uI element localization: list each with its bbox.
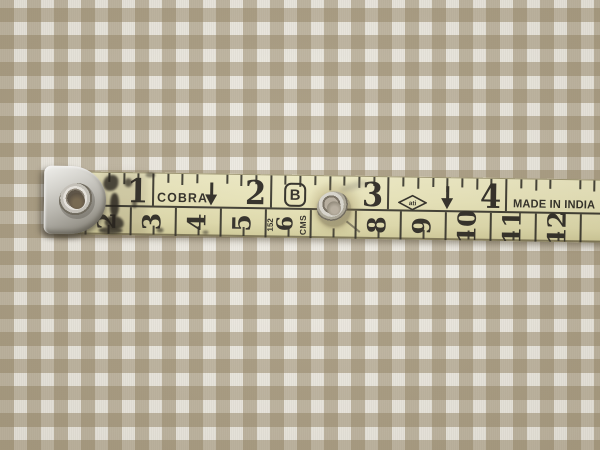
cm-tick	[467, 231, 469, 240]
cm-tick	[377, 229, 379, 238]
dirt-speck	[203, 230, 209, 234]
inch-tick	[226, 175, 228, 184]
inch-tick	[476, 179, 478, 190]
made-in-india-label: MADE IN INDIA	[513, 198, 595, 211]
inch-mark-line	[152, 174, 155, 206]
inch-tick	[373, 177, 375, 186]
half-inch-arrow-icon	[205, 182, 217, 206]
cm-mark-line	[444, 212, 446, 240]
ati-diamond-logo: ati	[398, 194, 427, 210]
dirt-smudge	[124, 178, 132, 187]
cm-mark-line	[579, 214, 581, 242]
cm-tick	[242, 227, 244, 236]
inch-tick	[432, 178, 434, 187]
cm-number-6: 6	[274, 211, 298, 235]
inch-tick	[314, 176, 316, 185]
cm-mark-line	[534, 214, 536, 242]
cm-mark-line	[174, 208, 176, 236]
grommet-hole	[69, 193, 85, 209]
grommet-icon	[59, 183, 95, 219]
cm-tick	[152, 226, 154, 235]
inch-tick	[196, 174, 198, 183]
dirt-speck	[145, 172, 155, 177]
inch-tick	[138, 173, 140, 182]
cm-tick	[512, 231, 514, 240]
inch-tick	[579, 180, 581, 189]
inch-tick	[594, 180, 596, 191]
inch-scale: 1234	[53, 171, 600, 180]
cm-mark-line	[399, 211, 401, 239]
cm-mark-line	[219, 209, 221, 237]
inch-tick	[550, 180, 552, 189]
inch-tick	[255, 175, 257, 184]
inch-mark-line	[505, 179, 508, 211]
dirt-smudge	[110, 193, 119, 217]
cm-tick	[422, 230, 424, 239]
brand-label: COBRA	[157, 190, 208, 206]
inch-tick	[241, 175, 243, 186]
svg-text:ati: ati	[409, 200, 417, 207]
cm-mark-line	[489, 213, 491, 241]
cm-tick	[557, 232, 559, 241]
inch-tick	[402, 177, 404, 186]
inch-tick	[461, 178, 463, 187]
rivet-core	[327, 201, 341, 215]
inch-mark-line	[270, 175, 273, 207]
cm-tick	[197, 226, 199, 235]
b-logo: B	[284, 183, 306, 207]
inch-tick	[417, 178, 419, 189]
inch-tick	[182, 174, 184, 185]
dirt-smudge	[99, 227, 123, 234]
inch-tick	[167, 174, 169, 183]
inch-tick	[535, 180, 537, 191]
inch-mark-line	[387, 177, 390, 209]
fabric-background: 1234 234589101112 COBRA B ati MADE IN IN…	[0, 0, 600, 450]
half-inch-arrow-icon	[441, 186, 453, 210]
inch-tick	[520, 179, 522, 188]
measuring-tape: 1234 234589101112 COBRA B ati MADE IN IN…	[53, 171, 600, 243]
inch-tick	[491, 179, 493, 188]
dirt-speck	[157, 228, 164, 233]
